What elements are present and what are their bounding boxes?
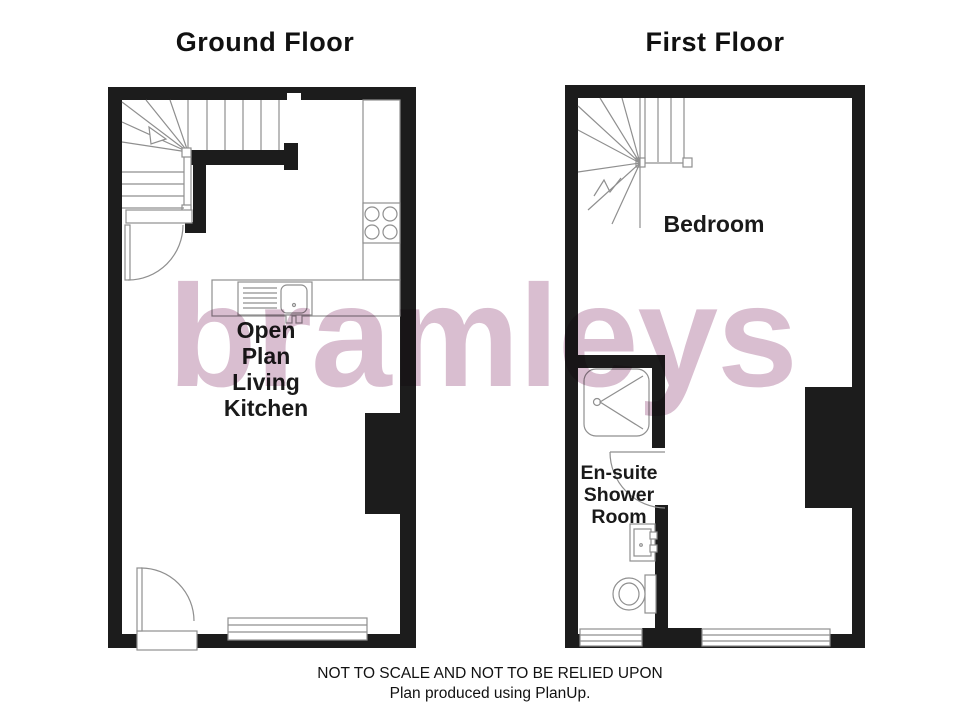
chimney-breast: [805, 387, 852, 508]
bedroom-window: [702, 629, 830, 646]
ground-floor-title: Ground Floor: [105, 27, 425, 58]
room-label-line: Open: [191, 317, 341, 343]
disclaimer-text: NOT TO SCALE AND NOT TO BE RELIED UPON: [0, 665, 980, 683]
chimney-breast: [365, 413, 400, 514]
room-label-line: Room: [560, 506, 678, 528]
room-label-line: En-suite: [560, 462, 678, 484]
room-label-line: Plan: [191, 343, 341, 369]
stair-break-mark: [594, 178, 621, 196]
ground-floor-room-label: Open Plan Living Kitchen: [191, 317, 341, 421]
kitchen-counter: [212, 100, 400, 323]
hob-icon: [363, 203, 400, 243]
toilet-icon: [613, 575, 656, 613]
ensuite-window: [580, 629, 642, 646]
understairs-door: [125, 225, 183, 280]
shower-tray-icon: [584, 369, 649, 436]
first-floor-plan: [563, 83, 867, 650]
room-label-line: Living: [191, 369, 341, 395]
first-floor-stairs: [578, 98, 692, 228]
floorplan-page: Ground Floor First Floor: [0, 0, 980, 712]
produced-by-text: Plan produced using PlanUp.: [0, 685, 980, 703]
first-floor-title: First Floor: [565, 27, 865, 58]
ground-floor-window: [228, 618, 367, 640]
wall-notch: [287, 93, 301, 101]
room-label-line: Shower: [560, 484, 678, 506]
room-label-line: Kitchen: [191, 395, 341, 421]
ensuite-label: En-suite Shower Room: [560, 462, 678, 528]
bedroom-label: Bedroom: [639, 211, 789, 237]
basin-icon: [630, 524, 657, 561]
entrance-door: [137, 568, 197, 650]
first-floor-walls: [565, 85, 865, 648]
